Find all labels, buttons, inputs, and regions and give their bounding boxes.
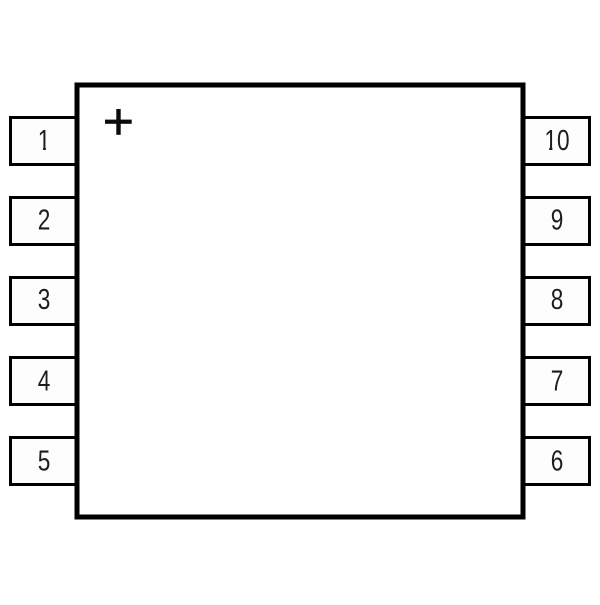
svg-text:9: 9 bbox=[551, 203, 564, 236]
svg-text:7: 7 bbox=[551, 364, 564, 397]
svg-text:1: 1 bbox=[38, 123, 51, 156]
svg-text:5: 5 bbox=[38, 444, 51, 477]
svg-text:2: 2 bbox=[38, 203, 51, 236]
svg-text:4: 4 bbox=[38, 364, 51, 397]
svg-text:6: 6 bbox=[551, 444, 564, 477]
svg-text:10: 10 bbox=[544, 123, 569, 156]
svg-text:3: 3 bbox=[38, 282, 51, 315]
svg-text:8: 8 bbox=[551, 282, 564, 315]
